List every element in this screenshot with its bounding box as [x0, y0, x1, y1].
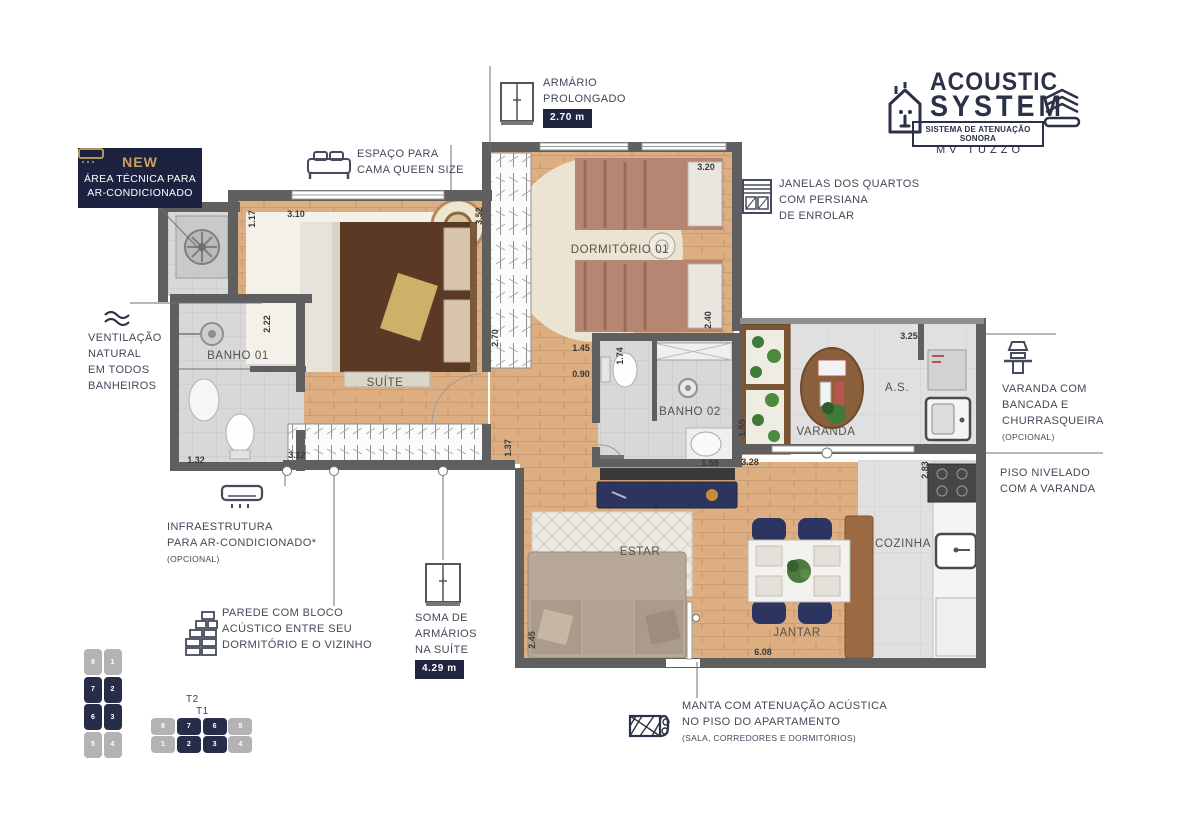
dimension-label: 2.22	[262, 315, 272, 333]
annotation-infraestrutura: INFRAESTRUTURA PARA AR-CONDICIONADO* (OP…	[167, 519, 316, 567]
dimension-label: 2.45	[527, 631, 537, 649]
dimension-label: 3.52	[474, 207, 484, 225]
dimension-label: 2.40	[703, 311, 713, 329]
armario-length-badge: 2.70 m	[543, 109, 592, 128]
annotation-ventilacao: VENTILAÇÃO NATURAL EM TODOS BANHEIROS	[88, 330, 162, 394]
dimension-label: 1.55	[737, 419, 747, 437]
keyplan-unit: 6	[84, 704, 102, 730]
keyplan-unit: 4	[104, 732, 122, 758]
dimension-label: 2.70	[490, 329, 500, 347]
keyplan-unit: 2	[177, 736, 201, 753]
dimension-label: 1.59	[701, 458, 719, 468]
dimension-label: 3.25	[900, 331, 918, 341]
bed-icon	[305, 147, 353, 183]
acoustic-mat-icon	[628, 700, 674, 744]
dimension-label: 3.12	[288, 450, 306, 460]
ac-unit-icon	[220, 484, 264, 512]
logo-title-line2: SYSTEM	[930, 89, 1042, 123]
dimension-label: 3.28	[741, 457, 759, 467]
room-label: SUÍTE	[367, 377, 404, 389]
room-label: VARANDA	[797, 426, 856, 438]
area-tecnica-equipment	[176, 216, 228, 278]
room-label: DORMITÓRIO 01	[571, 244, 670, 256]
keyplan-unit: 5	[84, 732, 102, 758]
keyplan-unit: 3	[203, 736, 227, 753]
room-label: BANHO 01	[207, 350, 269, 362]
grill-icon	[1002, 340, 1034, 378]
logo-title: ACOUSTIC SYSTEM	[930, 68, 1042, 122]
dimension-label: 1.74	[615, 347, 625, 365]
keyplan-unit: 5	[228, 718, 252, 735]
room-label: A.S.	[885, 382, 909, 394]
ac-unit-gold-icon	[78, 148, 104, 164]
acoustic-layers-icon	[1042, 84, 1082, 140]
window-blind-icon	[741, 178, 773, 216]
wardrobe-icon	[500, 82, 534, 126]
dimension-label: 6.08	[754, 647, 772, 657]
dimension-label: 0.90	[572, 369, 590, 379]
keyplan-unit: 1	[151, 736, 175, 753]
dimension-label: 1.45	[572, 343, 590, 353]
annotation-parede-acustica: PAREDE COM BLOCO ACÚSTICO ENTRE SEU DORM…	[222, 605, 372, 653]
keyplan-t1-label: T1	[196, 706, 209, 717]
brick-wall-icon	[184, 610, 218, 658]
keyplan-unit: 6	[203, 718, 227, 735]
annotation-varanda-churrasqueira: VARANDA COM BANCADA E CHURRASQUEIRA (OPC…	[1002, 381, 1104, 445]
room-label: BANHO 02	[659, 406, 721, 418]
floorplan-page: ACOUSTIC SYSTEM SISTEMA DE ATENUAÇÃO SON…	[0, 0, 1182, 818]
annotation-armario-prolongado: ARMÁRIO PROLONGADO 2.70 m	[543, 75, 626, 128]
annotation-piso-nivelado: PISO NIVELADO COM A VARANDA	[1000, 465, 1095, 497]
new-area-tecnica-badge: NEW ÁREA TÉCNICA PARA AR-CONDICIONADO	[78, 148, 202, 208]
keyplan-unit: 2	[104, 677, 122, 703]
annotation-janelas-quartos: JANELAS DOS QUARTOS COM PERSIANA DE ENRO…	[779, 176, 919, 224]
dimension-label: 2.83	[920, 461, 930, 479]
soma-armarios-badge: 4.29 m	[415, 660, 464, 679]
wardrobe-sum-icon	[424, 562, 462, 608]
room-label: JANTAR	[773, 627, 820, 639]
new-tag: NEW	[122, 155, 158, 169]
dimension-label: 3.10	[287, 209, 305, 219]
dimension-label: 3.20	[697, 162, 715, 172]
keyplan-t2-label: T2	[186, 694, 199, 705]
annotation-manta-acustica: MANTA COM ATENUAÇÃO ACÚSTICA NO PISO DO …	[682, 698, 887, 746]
keyplan-unit: 7	[84, 677, 102, 703]
dimension-label: 1.17	[247, 210, 257, 228]
logo-brand: MV TUZZO	[880, 144, 1080, 156]
keyplan-unit: 4	[228, 736, 252, 753]
keyplan-unit: 8	[151, 718, 175, 735]
keyplan-unit: 3	[104, 704, 122, 730]
room-label: COZINHA	[875, 538, 931, 550]
air-waves-icon	[103, 310, 137, 330]
annotation-espaco-cama: ESPAÇO PARA CAMA QUEEN SIZE	[357, 146, 464, 178]
dimension-label: 1.32	[187, 455, 205, 465]
keyplan-unit: 1	[104, 649, 122, 675]
keyplan-unit: 7	[177, 718, 201, 735]
room-label: ESTAR	[620, 546, 661, 558]
dimension-label: 1.37	[503, 439, 513, 457]
keyplan-unit: 8	[84, 649, 102, 675]
annotation-soma-armarios: SOMA DE ARMÁRIOS NA SUÍTE 4.29 m	[415, 610, 477, 679]
